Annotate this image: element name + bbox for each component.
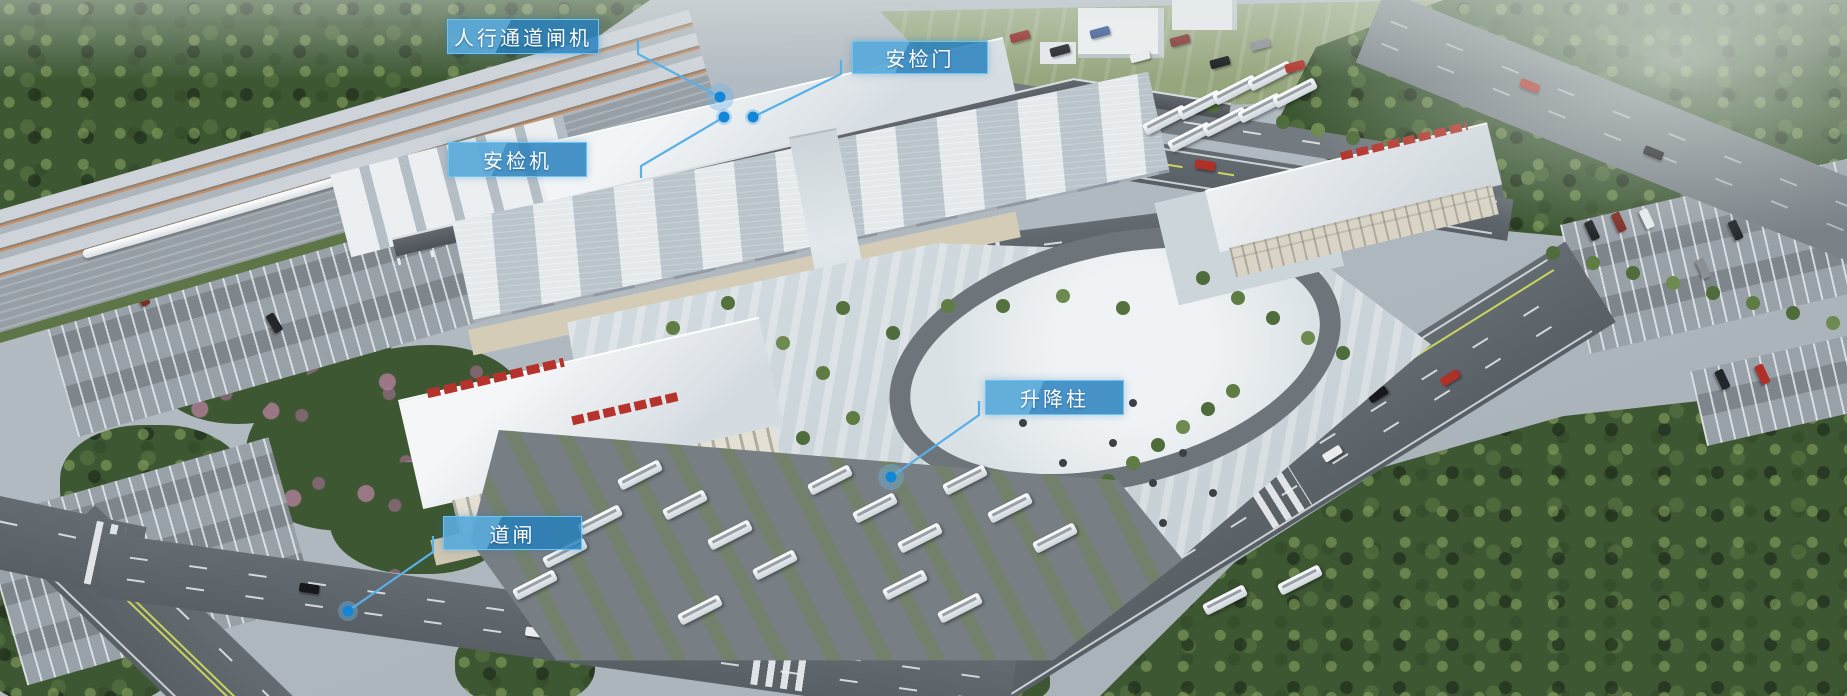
tree-row-north-road — [1180, 95, 1186, 101]
tree-row-garage — [1190, 260, 1196, 266]
callout-text: 安检门 — [886, 43, 955, 72]
callout-text: 安检机 — [483, 145, 552, 174]
callout-label-barrier-gate: 道闸 — [443, 516, 582, 550]
callout-label-security-door: 安检门 — [852, 41, 988, 74]
station-aerial-annotated-render: 人行通道闸机 安检门 安检机 升降柱 道闸 — [0, 0, 1847, 696]
callout-text: 升降柱 — [1020, 383, 1089, 412]
plaza-trees — [640, 285, 646, 291]
haze-top-right — [1280, 0, 1847, 240]
callout-label-pedestrian-gate: 人行通道闸机 — [447, 19, 599, 54]
callout-text: 道闸 — [490, 519, 536, 548]
aerial-scene — [0, 0, 1847, 696]
callout-text: 人行通道闸机 — [454, 22, 592, 51]
tree-row-east-parking — [1520, 240, 1526, 246]
callout-label-security-scanner: 安检机 — [448, 142, 587, 177]
callout-label-lifting-bollard: 升降柱 — [985, 380, 1124, 415]
